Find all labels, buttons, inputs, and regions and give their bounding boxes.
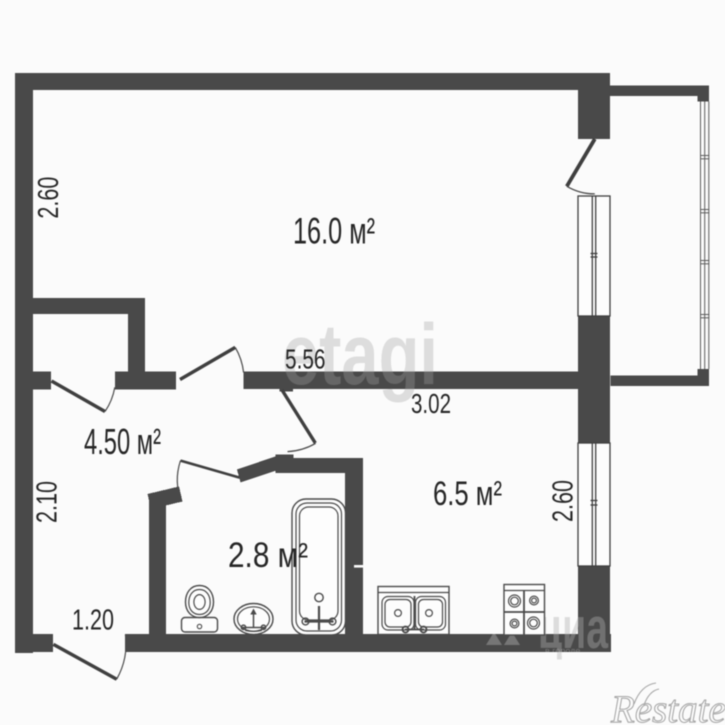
svg-text:3.02: 3.02 [411,388,451,419]
svg-text:5.56: 5.56 [285,344,326,375]
svg-text:Restate: Restate [610,688,725,725]
svg-text:16.0 м²: 16.0 м² [293,211,375,252]
svg-text:1.20: 1.20 [72,605,114,637]
svg-text:в городе: в городе [545,646,580,656]
svg-text:4.50 м²: 4.50 м² [84,421,161,462]
svg-text:2.10: 2.10 [32,481,64,523]
svg-text:2.8 м²: 2.8 м² [228,536,308,575]
svg-text:2.60: 2.60 [548,480,580,522]
svg-text:6.5 м²: 6.5 м² [433,475,502,513]
svg-text:2.60: 2.60 [33,177,65,219]
